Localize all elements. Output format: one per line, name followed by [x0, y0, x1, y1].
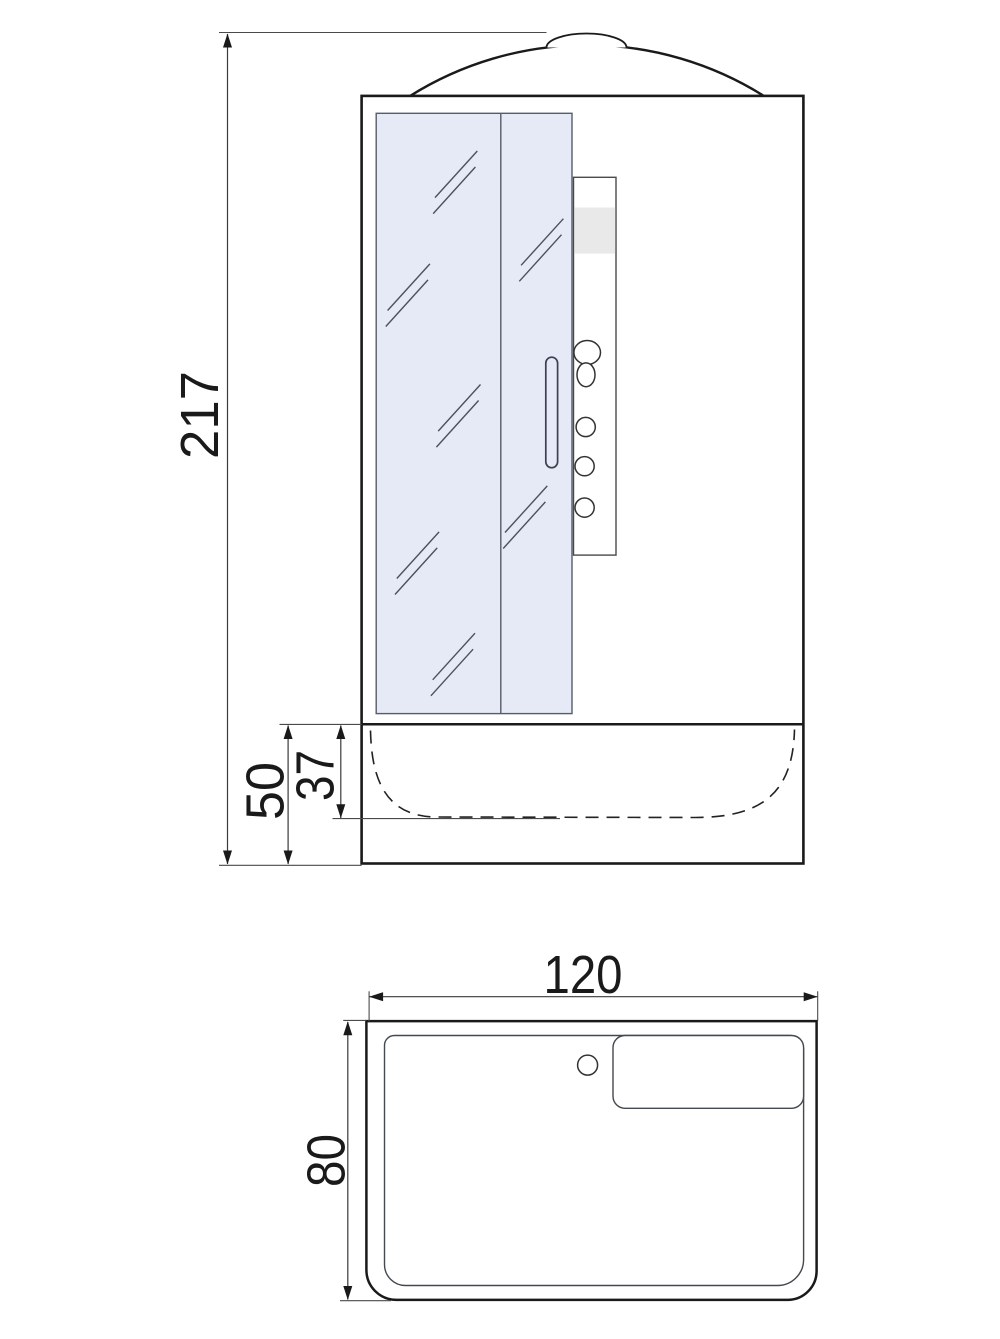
svg-text:80: 80	[296, 1134, 356, 1187]
svg-text:120: 120	[544, 945, 623, 1005]
svg-text:217: 217	[170, 371, 230, 459]
svg-text:37: 37	[286, 750, 346, 801]
